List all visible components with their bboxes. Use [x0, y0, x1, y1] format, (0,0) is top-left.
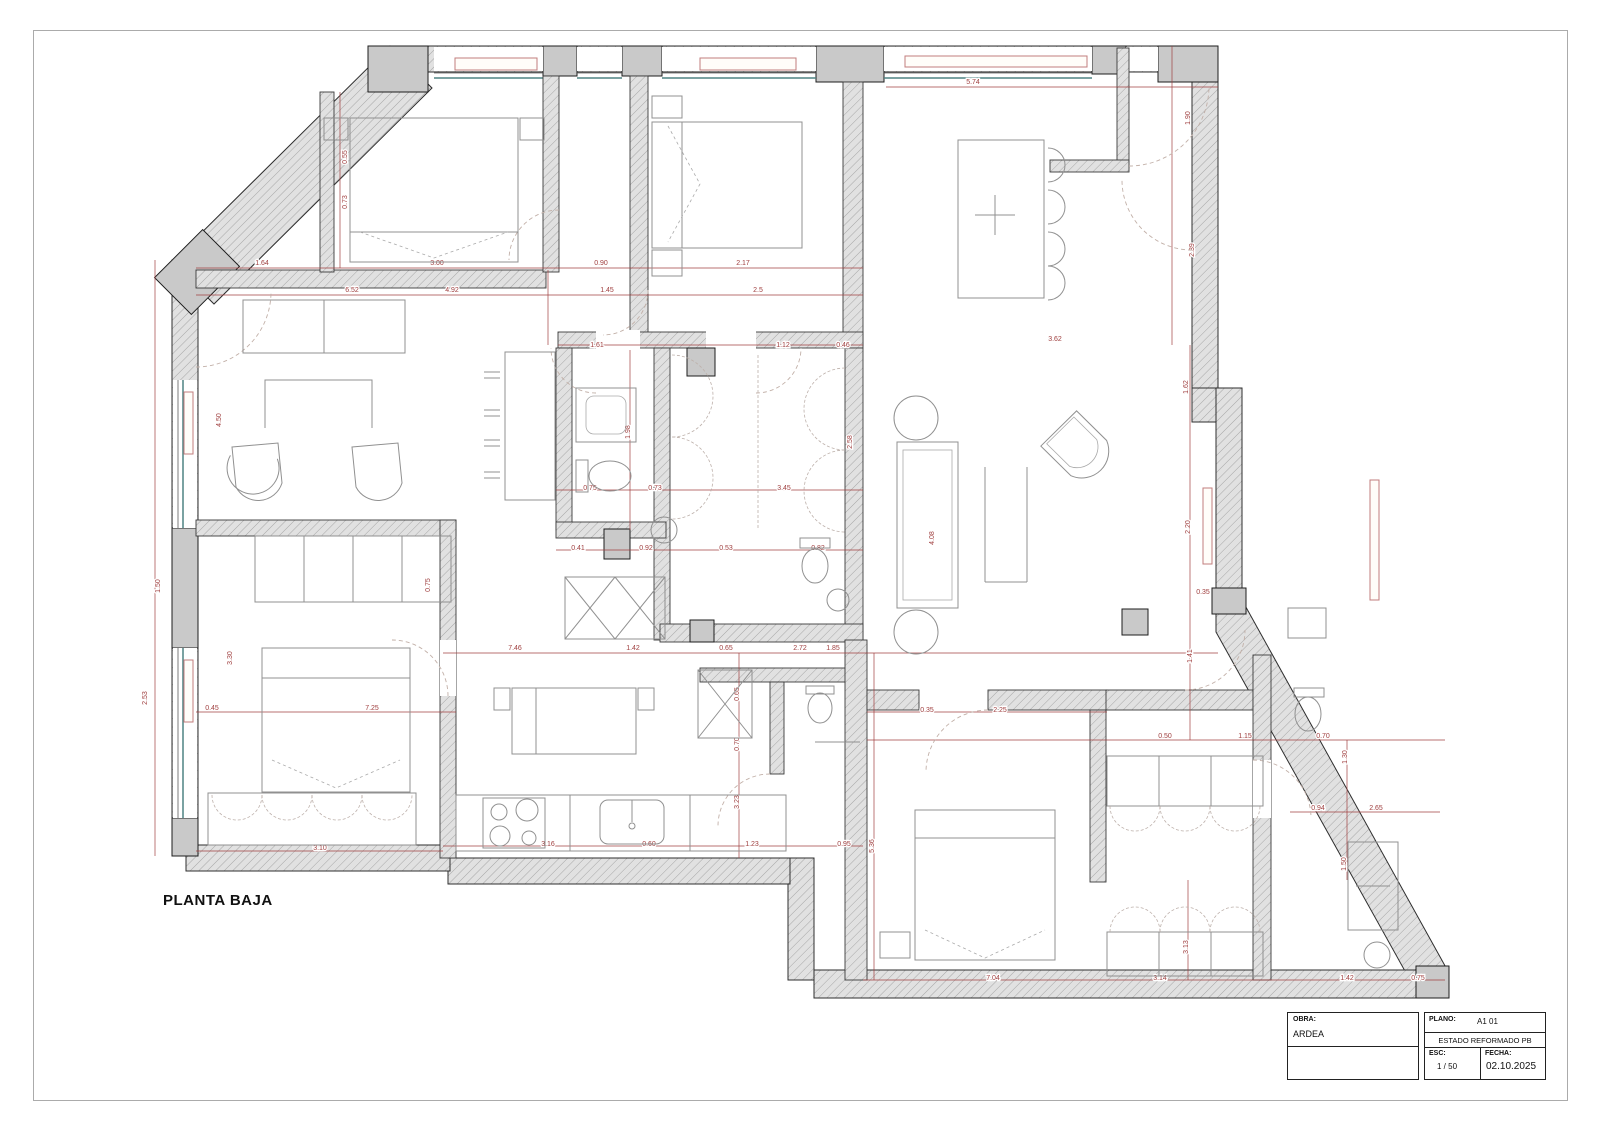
drawing-sheet: 1.643.000.902.176.524.921.452.55.741.902… [0, 0, 1600, 1131]
dimension-label: 1.23 [745, 841, 759, 848]
radiator-symbol [455, 58, 537, 70]
dimension-label: 2.53 [142, 691, 149, 705]
shower-symbol [1288, 608, 1326, 638]
dimension-label: 0.75 [425, 578, 432, 592]
wardrobe-symbol [1107, 756, 1263, 806]
dimension-label: 3.62 [1048, 336, 1062, 343]
door-swings [196, 86, 1311, 826]
dimension-label: 1.85 [826, 645, 840, 652]
dimension-label: 0.65 [719, 645, 733, 652]
title-block-project: OBRA: ARDEA [1287, 1012, 1419, 1080]
dimension-label: 2.72 [793, 645, 807, 652]
fecha-value: 02.10.2025 [1486, 1061, 1536, 1072]
nightstand-symbol [638, 688, 654, 710]
radiator-symbol [1370, 480, 1379, 600]
door-arc [756, 348, 801, 393]
sink-symbol [1364, 942, 1390, 968]
plano-value: A1 01 [1477, 1017, 1498, 1026]
dimension-label: 1.42 [626, 645, 640, 652]
dimension-label: 1.41 [1187, 649, 1194, 663]
dimension-label: 3.10 [313, 845, 327, 852]
plan-title: PLANTA BAJA [163, 892, 273, 909]
dimension-label: 6.52 [345, 287, 359, 294]
dimension-label: 3.30 [227, 651, 234, 665]
dimension-label: 3.00 [430, 260, 444, 267]
dimension-label: 1.30 [1342, 750, 1349, 764]
dimension-label: 0.65 [734, 687, 741, 701]
armchair-symbol [352, 443, 402, 500]
dimension-label: 0.45 [205, 705, 219, 712]
dimension-label: 0.92 [639, 545, 653, 552]
dimension-label: 3.13 [1183, 940, 1190, 954]
dimension-label: 1.50 [1341, 857, 1348, 871]
dimension-label: 7.04 [986, 975, 1000, 982]
chair-symbol [1048, 190, 1065, 224]
door-arc [718, 774, 770, 826]
dimension-label: 0.73 [342, 195, 349, 209]
armchair-symbol [225, 449, 282, 498]
dimension-label: 3.23 [734, 795, 741, 809]
kitchen-furniture [456, 688, 786, 851]
nightstand-symbol [652, 250, 682, 276]
obra-label: OBRA: [1293, 1016, 1316, 1023]
bed-symbol [652, 96, 802, 276]
dimension-label: 0.75 [1411, 975, 1425, 982]
dimension-label: 4.50 [216, 413, 223, 427]
dimension-label: 1.90 [1185, 111, 1192, 125]
toilet-symbol [1294, 688, 1324, 697]
door-arc [196, 292, 271, 367]
dimension-label: 1.62 [1183, 380, 1190, 394]
dimension-label: 1.42 [1340, 975, 1354, 982]
sofa-symbol [897, 442, 958, 608]
dimension-label: 5.74 [966, 79, 980, 86]
console-symbol [985, 467, 1027, 582]
living-room-furniture [894, 396, 1119, 654]
title-block-sheet: PLANO: A1 01 ESTADO REFORMADO PB ESC: 1 … [1424, 1012, 1546, 1080]
radiator-symbol [184, 660, 193, 722]
sofa-symbol [265, 380, 372, 428]
dimension-label: 2.25 [993, 707, 1007, 714]
nightstand-symbol [880, 932, 910, 958]
bed-symbol [512, 688, 636, 754]
dimension-label: 1.64 [255, 260, 269, 267]
dimension-label: 0.70 [734, 737, 741, 751]
dimension-label: 2.17 [736, 260, 750, 267]
dimension-label: 3.45 [777, 485, 791, 492]
side-table-symbol [894, 396, 938, 440]
dimension-label: 3.16 [541, 841, 555, 848]
door-arc [926, 710, 988, 772]
esc-label: ESC: [1429, 1050, 1446, 1057]
dining-table-symbol [958, 140, 1065, 300]
radiator-symbol [184, 392, 193, 454]
table-symbol [505, 352, 555, 500]
dimension-label: 0.46 [836, 342, 850, 349]
chair-symbol [1048, 266, 1065, 300]
bed-symbol [208, 536, 451, 845]
dimension-lines [155, 46, 1445, 980]
dimension-label: 0.70 [1316, 733, 1330, 740]
nightstand-symbol [494, 688, 510, 710]
dimension-label: 7.46 [508, 645, 522, 652]
dimension-label: 1.45 [600, 287, 614, 294]
kitchen-sink-symbol [600, 800, 664, 844]
bed-symbol [915, 810, 1055, 960]
wardrobe-symbol [672, 355, 845, 532]
dimension-label: 0.90 [594, 260, 608, 267]
armchair-symbol [1038, 408, 1119, 489]
fecha-label: FECHA: [1485, 1050, 1511, 1057]
title-block-divider [1288, 1046, 1418, 1047]
dimension-label: 2.20 [1185, 520, 1192, 534]
dimension-label: 0.35 [920, 707, 934, 714]
chair-symbol [1048, 232, 1065, 266]
nightstand-symbol [520, 118, 544, 140]
radiator-symbol [700, 58, 796, 70]
dimension-label: 5.36 [869, 839, 876, 853]
dimension-label: 0.55 [342, 150, 349, 164]
dimension-label: 1.50 [155, 579, 162, 593]
dimension-label: 0.95 [837, 841, 851, 848]
dimension-label: 2.5 [753, 287, 763, 294]
wardrobe-symbol [208, 793, 416, 845]
dimension-label: 4.08 [929, 531, 936, 545]
dimension-label: 1.12 [776, 342, 790, 349]
dimension-label: 1.61 [590, 342, 604, 349]
stove-symbol [483, 798, 545, 848]
dimension-label: 2.58 [847, 435, 854, 449]
radiator-symbol [905, 56, 1087, 67]
obra-value: ARDEA [1293, 1029, 1324, 1039]
door-arc [1122, 180, 1192, 250]
column-pier [1122, 609, 1148, 635]
dimension-label: 0.53 [719, 545, 733, 552]
esc-value: 1 / 50 [1437, 1062, 1457, 1071]
armchair-symbol [232, 443, 282, 500]
dimension-label: 0.50 [1158, 733, 1172, 740]
estado-value: ESTADO REFORMADO PB [1425, 1032, 1545, 1047]
dimension-label: 4.92 [445, 287, 459, 294]
dimension-label: 0.41 [571, 545, 585, 552]
dimension-label: 0.94 [1311, 805, 1325, 812]
interior-walls [196, 48, 1271, 980]
wall-pier [368, 46, 428, 92]
dimension-label: 7.25 [365, 705, 379, 712]
nightstand-symbol [652, 96, 682, 118]
floor-plan-svg: 1.643.000.902.176.524.921.452.55.741.902… [0, 0, 1600, 1131]
side-table-symbol [894, 610, 938, 654]
radiator-symbol [1203, 488, 1212, 564]
plano-label: PLANO: [1429, 1016, 1456, 1023]
dimension-label: 2.65 [1369, 805, 1383, 812]
dimension-label: 0.73 [648, 485, 662, 492]
bathroom-fixtures [576, 388, 849, 611]
master-suite-furniture [880, 756, 1263, 976]
dimension-label: 1.15 [1238, 733, 1252, 740]
dimension-label: 0.35 [1196, 589, 1210, 596]
living-room-furniture [225, 300, 555, 500]
